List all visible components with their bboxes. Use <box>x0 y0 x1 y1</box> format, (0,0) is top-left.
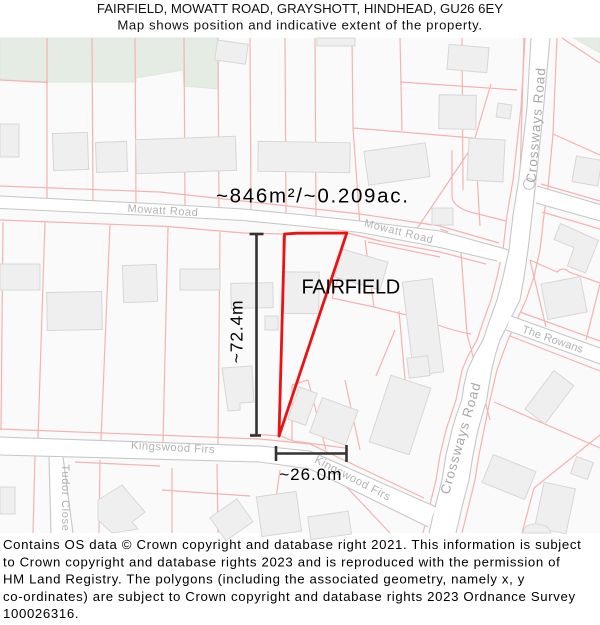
svg-text:~72.4m: ~72.4m <box>227 300 247 364</box>
svg-text:100026316.: 100026316. <box>3 606 79 621</box>
svg-text:Tudor Close: Tudor Close <box>59 464 71 531</box>
svg-text:to Crown copyright and databas: to Crown copyright and database rights 2… <box>3 555 560 570</box>
svg-text:Map shows position and indicat: Map shows position and indicative extent… <box>117 18 482 33</box>
svg-text:~26.0m: ~26.0m <box>279 465 342 484</box>
svg-text:co-ordinates) are subject to C: co-ordinates) are subject to Crown copyr… <box>3 589 576 604</box>
svg-text:Contains OS data © Crown copyr: Contains OS data © Crown copyright and d… <box>3 537 581 552</box>
svg-text:HM Land Registry. The polygons: HM Land Registry. The polygons (includin… <box>3 572 525 587</box>
svg-text:FAIRFIELD, MOWATT ROAD, GRAYSH: FAIRFIELD, MOWATT ROAD, GRAYSHOTT, HINDH… <box>97 1 503 16</box>
svg-text:FAIRFIELD: FAIRFIELD <box>302 277 400 299</box>
svg-text:~846m²/~0.209ac.: ~846m²/~0.209ac. <box>216 185 410 208</box>
